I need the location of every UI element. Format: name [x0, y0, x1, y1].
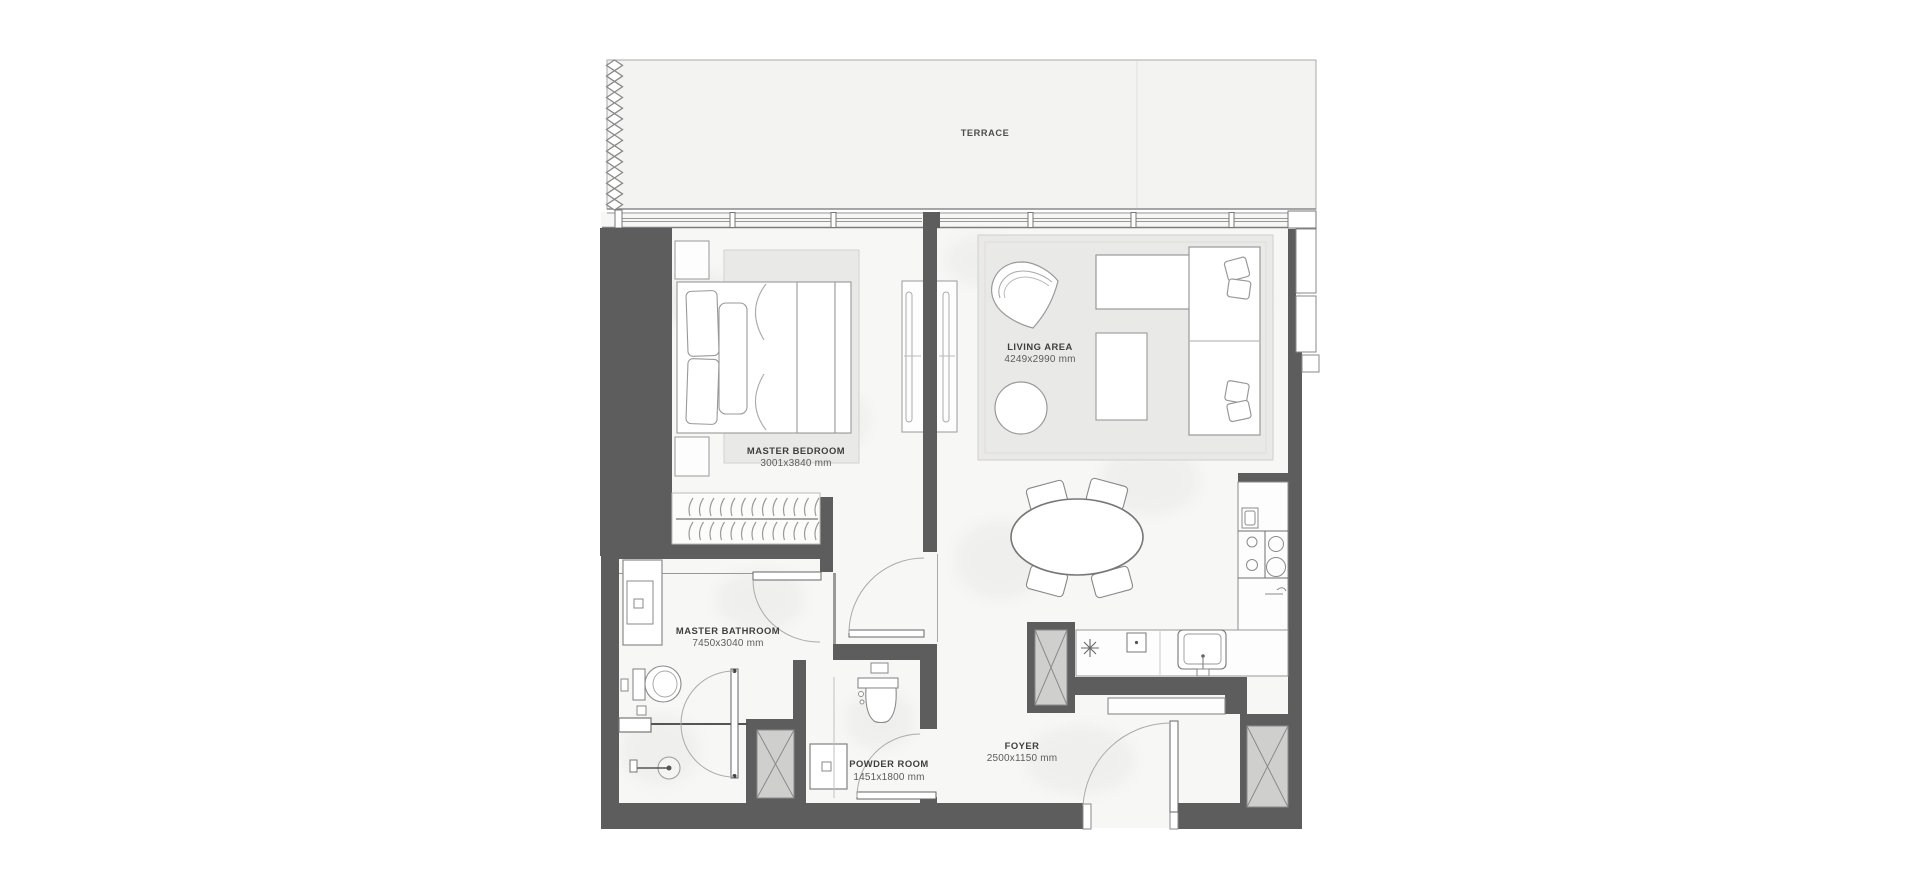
- svg-text:1451x1800 mm: 1451x1800 mm: [853, 772, 924, 783]
- svg-text:LIVING AREA: LIVING AREA: [1007, 341, 1073, 352]
- svg-text:TERRACE: TERRACE: [961, 128, 1010, 138]
- svg-text:7450x3040 mm: 7450x3040 mm: [692, 638, 763, 649]
- svg-text:3001x3840 mm: 3001x3840 mm: [760, 458, 831, 469]
- svg-text:POWDER ROOM: POWDER ROOM: [849, 758, 928, 769]
- svg-text:MASTER BEDROOM: MASTER BEDROOM: [747, 445, 845, 456]
- svg-text:4249x2990 mm: 4249x2990 mm: [1004, 354, 1075, 365]
- svg-text:MASTER BATHROOM: MASTER BATHROOM: [676, 625, 780, 636]
- svg-text:FOYER: FOYER: [1005, 740, 1040, 751]
- svg-text:2500x1150 mm: 2500x1150 mm: [987, 753, 1058, 764]
